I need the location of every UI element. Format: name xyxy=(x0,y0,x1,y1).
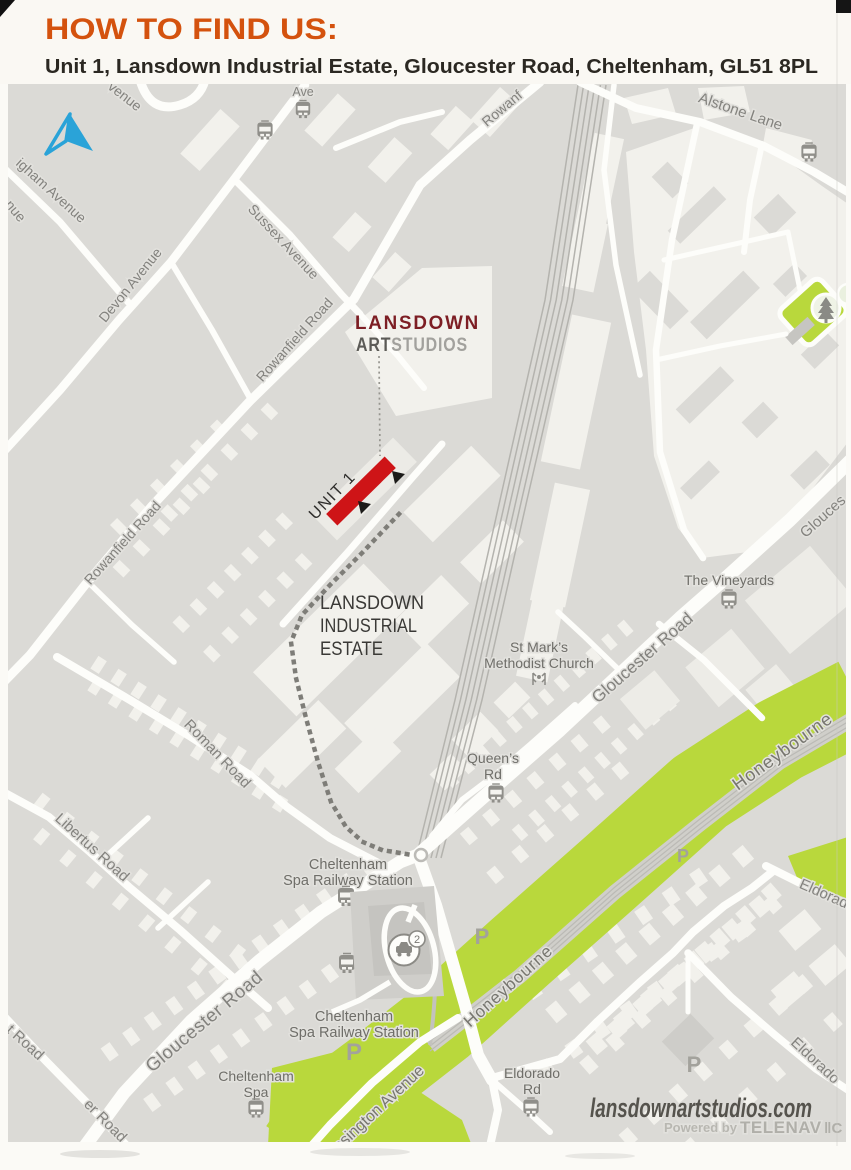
svg-text:P: P xyxy=(677,846,689,866)
svg-text:Cheltenham: Cheltenham xyxy=(315,1009,393,1025)
svg-text:P: P xyxy=(346,1039,362,1066)
svg-text:Cheltenham: Cheltenham xyxy=(309,857,387,873)
svg-text:Ave: Ave xyxy=(292,85,313,99)
svg-text:Rd: Rd xyxy=(523,1081,541,1097)
svg-text:P: P xyxy=(687,1052,702,1077)
svg-text:The Vineyards: The Vineyards xyxy=(684,572,774,588)
svg-text:Cheltenham: Cheltenham xyxy=(218,1068,294,1084)
svg-text:ARTSTUDIOS: ARTSTUDIOS xyxy=(356,335,468,356)
svg-text:Powered by: Powered by xyxy=(664,1120,738,1135)
svg-text:St Mark’s: St Mark’s xyxy=(510,639,568,655)
svg-text:Queen’s: Queen’s xyxy=(467,750,519,766)
svg-text:Spa: Spa xyxy=(244,1084,269,1100)
svg-text:LANSDOWN: LANSDOWN xyxy=(355,313,480,334)
svg-text:Unit 1, Lansdown Industrial Es: Unit 1, Lansdown Industrial Estate, Glou… xyxy=(45,56,818,78)
svg-text:‖C: ‖C xyxy=(824,1120,842,1137)
svg-text:Methodist Church: Methodist Church xyxy=(484,655,594,671)
svg-text:INDUSTRIAL: INDUSTRIAL xyxy=(320,616,417,637)
svg-text:HOW TO FIND US:: HOW TO FIND US: xyxy=(45,13,338,46)
svg-text:2: 2 xyxy=(414,934,420,946)
svg-text:ESTATE: ESTATE xyxy=(320,639,383,660)
svg-text:Rd: Rd xyxy=(484,766,502,782)
svg-text:TELENAV: TELENAV xyxy=(740,1118,822,1137)
svg-text:P: P xyxy=(475,924,490,949)
svg-text:LANSDOWN: LANSDOWN xyxy=(320,593,424,614)
svg-text:Eldorado: Eldorado xyxy=(504,1065,560,1081)
